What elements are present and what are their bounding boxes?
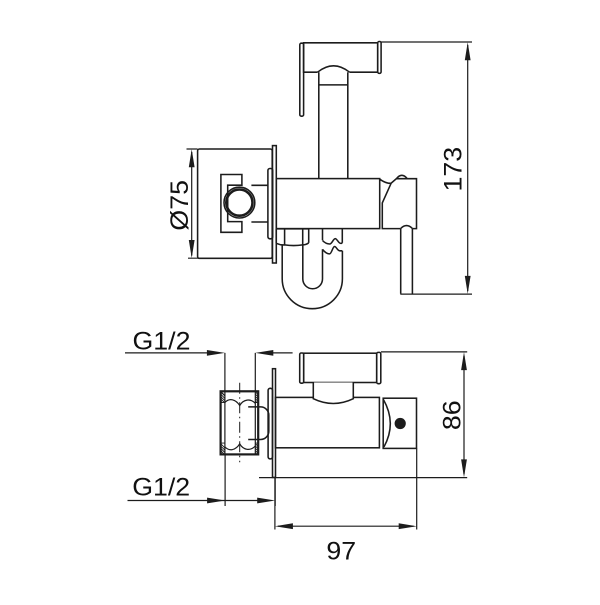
svg-text:173: 173	[440, 147, 467, 192]
svg-text:97: 97	[326, 538, 356, 565]
svg-text:G1/2: G1/2	[133, 328, 191, 355]
svg-text:G1/2: G1/2	[132, 474, 190, 501]
svg-text:Ø75: Ø75	[167, 180, 194, 231]
svg-text:86: 86	[439, 400, 466, 430]
